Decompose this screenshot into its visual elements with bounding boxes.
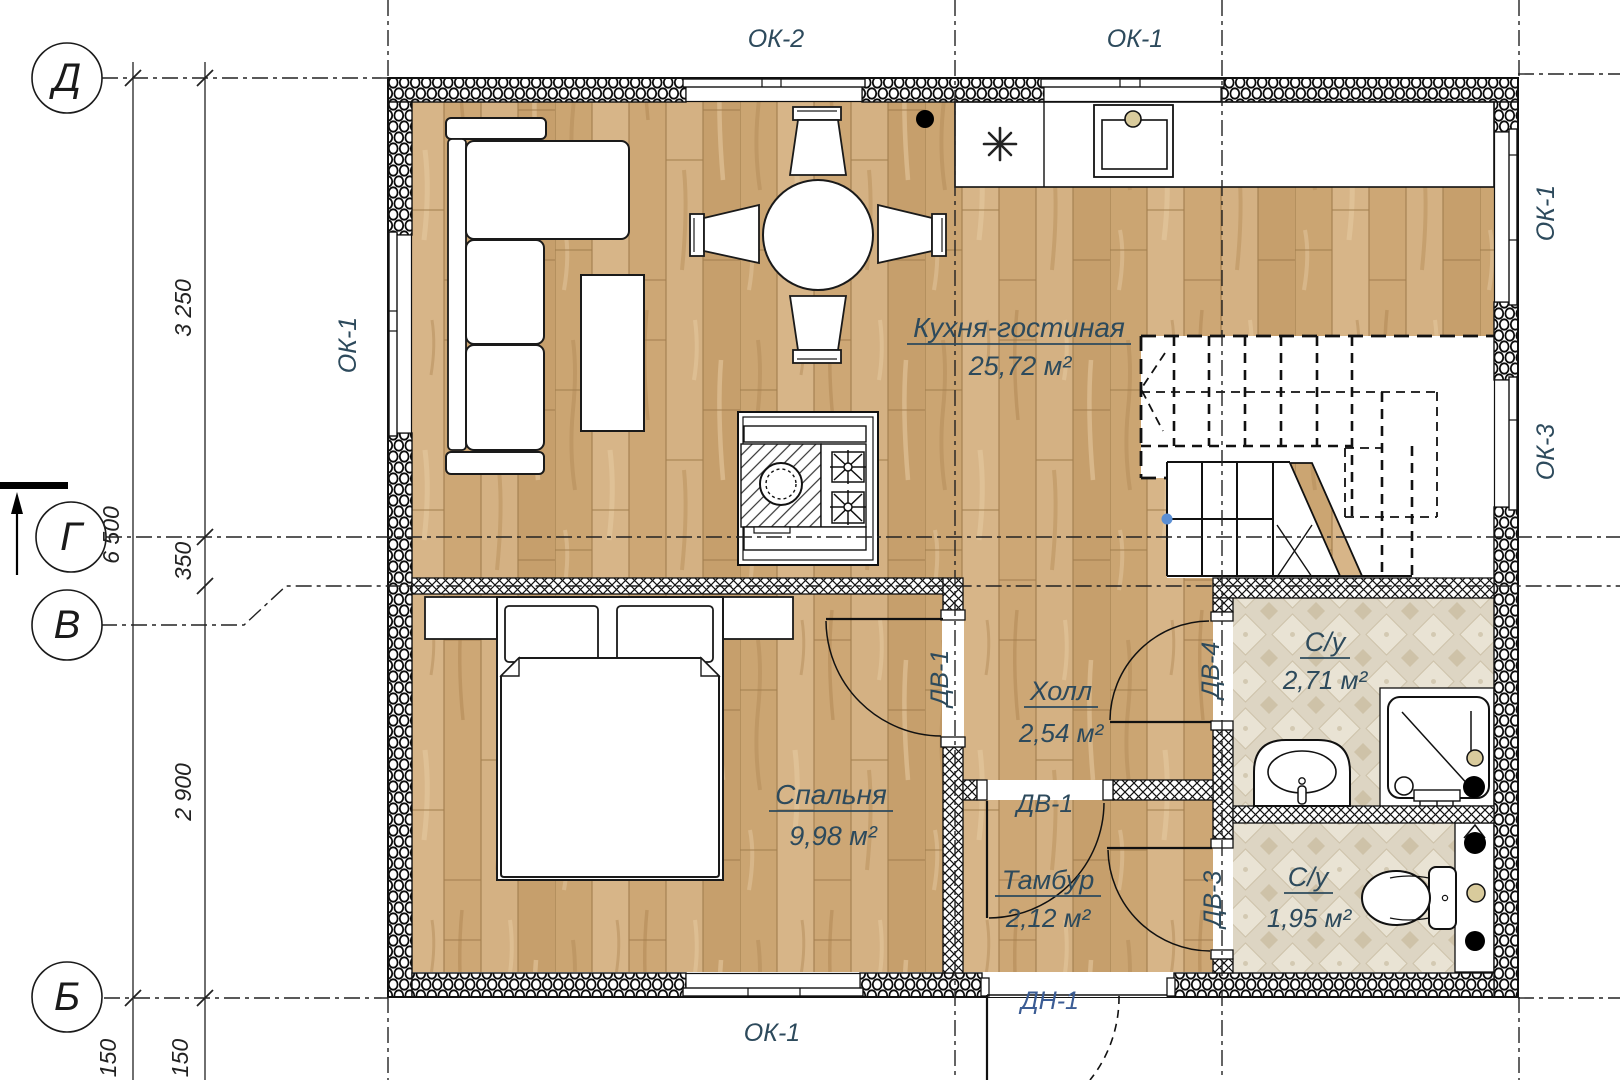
svg-text:ДВ-1: ДВ-1 bbox=[926, 650, 954, 710]
svg-text:2,71 м²: 2,71 м² bbox=[1282, 665, 1369, 695]
svg-text:ОК-2: ОК-2 bbox=[748, 25, 805, 53]
svg-text:Тамбур: Тамбур bbox=[1002, 865, 1095, 895]
svg-text:Г: Г bbox=[60, 515, 85, 559]
svg-text:350: 350 bbox=[170, 542, 196, 581]
svg-text:25,72 м²: 25,72 м² bbox=[968, 351, 1073, 381]
svg-text:Б: Б bbox=[54, 975, 80, 1019]
svg-text:С/у: С/у bbox=[1288, 862, 1330, 892]
svg-text:ДВ-4: ДВ-4 bbox=[1197, 642, 1225, 702]
svg-text:Спальня: Спальня bbox=[775, 779, 887, 810]
svg-text:ДВ-1: ДВ-1 bbox=[1014, 790, 1074, 818]
svg-text:2 900: 2 900 bbox=[170, 763, 196, 822]
svg-text:3 250: 3 250 bbox=[170, 279, 196, 337]
svg-text:9,98 м²: 9,98 м² bbox=[789, 821, 878, 851]
svg-text:6 500: 6 500 bbox=[98, 506, 124, 564]
svg-text:Холл: Холл bbox=[1029, 676, 1092, 706]
svg-text:В: В bbox=[54, 603, 81, 647]
svg-text:150: 150 bbox=[167, 1039, 193, 1078]
svg-text:Кухня-гостиная: Кухня-гостиная bbox=[913, 312, 1125, 343]
svg-text:ОК-1: ОК-1 bbox=[1107, 25, 1163, 53]
svg-text:150: 150 bbox=[95, 1039, 121, 1078]
svg-text:ДН-1: ДН-1 bbox=[1018, 987, 1079, 1015]
svg-text:Д: Д bbox=[49, 56, 81, 100]
svg-text:2,12 м²: 2,12 м² bbox=[1005, 903, 1092, 933]
svg-text:ОК-1: ОК-1 bbox=[744, 1019, 800, 1047]
svg-text:С/у: С/у bbox=[1305, 627, 1347, 657]
svg-text:ОК-1: ОК-1 bbox=[334, 317, 362, 373]
svg-text:ОК-1: ОК-1 bbox=[1532, 185, 1560, 241]
svg-text:ОК-3: ОК-3 bbox=[1532, 424, 1560, 481]
svg-text:2,54 м²: 2,54 м² bbox=[1018, 718, 1105, 748]
svg-text:ДВ-3: ДВ-3 bbox=[1199, 871, 1227, 931]
svg-text:1,95 м²: 1,95 м² bbox=[1267, 903, 1353, 933]
